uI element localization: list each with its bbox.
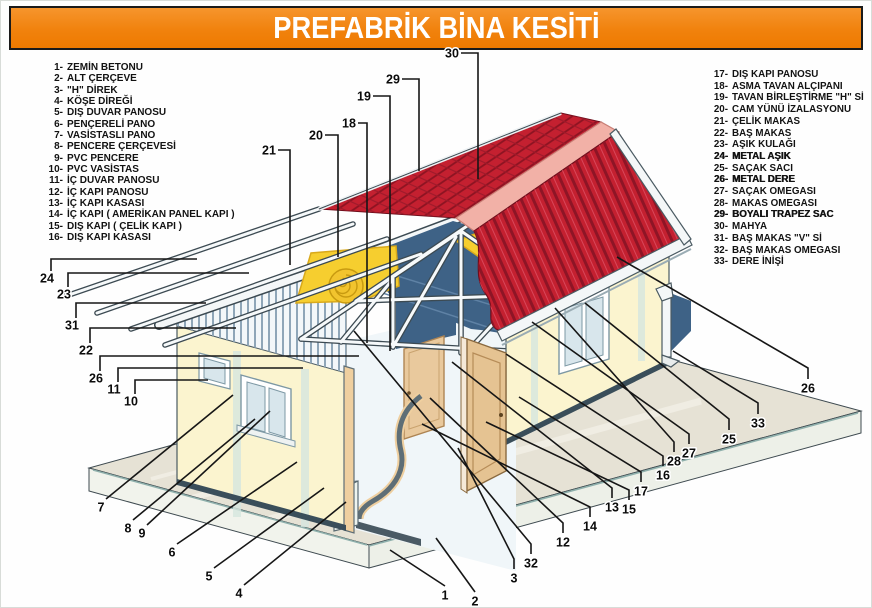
callout-number: 7 [98,501,105,515]
callout-number: 32 [524,557,538,571]
callout-number: 14 [583,520,597,534]
callout-number: 8 [125,522,132,536]
callout-number: 9 [139,527,146,541]
callout-number: 1 [442,589,449,603]
interior-door [404,336,444,439]
callout-number: 26 [801,382,815,396]
callout-number: 26 [89,372,103,386]
callout-number: 2 [472,595,479,608]
callout-number: 27 [682,447,696,461]
callout-number: 24 [40,272,54,286]
callout-number: 16 [656,469,670,483]
callout-number: 30 [445,47,459,61]
callout-number: 29 [386,73,400,87]
callout-number: 23 [57,288,71,302]
callout-number: 6 [169,546,176,560]
callout-number: 12 [556,536,570,550]
callout-number: 17 [634,485,648,499]
callout-number: 19 [357,90,371,104]
callout-number: 18 [342,117,356,131]
callout-number: 10 [124,395,138,409]
prefab-building-section-diagram: PREFABRİK BİNA KESİTİ 1-ZEMİN BETONU2-AL… [0,0,872,608]
callout-leader-line [373,96,390,351]
callout-number: 20 [309,129,323,143]
callout-number: 4 [236,587,243,601]
callout-number: 11 [107,383,120,397]
callout-leader-line [402,79,419,171]
callout-number: 13 [605,501,619,515]
callout-number: 25 [722,433,736,447]
building-illustration: 3029191820212423312226111078965412332121… [1,1,872,608]
callout-number: 31 [65,319,79,333]
callout-leader-line [390,550,445,586]
callout-number: 3 [511,572,518,586]
callout-number: 22 [79,344,93,358]
callout-number: 15 [622,503,636,517]
callout-leader-line [325,135,338,257]
callout-number: 21 [262,144,276,158]
callout-number: 33 [751,417,765,431]
callout-number: 5 [206,570,213,584]
exterior-door [461,337,506,493]
callout-number: 28 [667,455,681,469]
